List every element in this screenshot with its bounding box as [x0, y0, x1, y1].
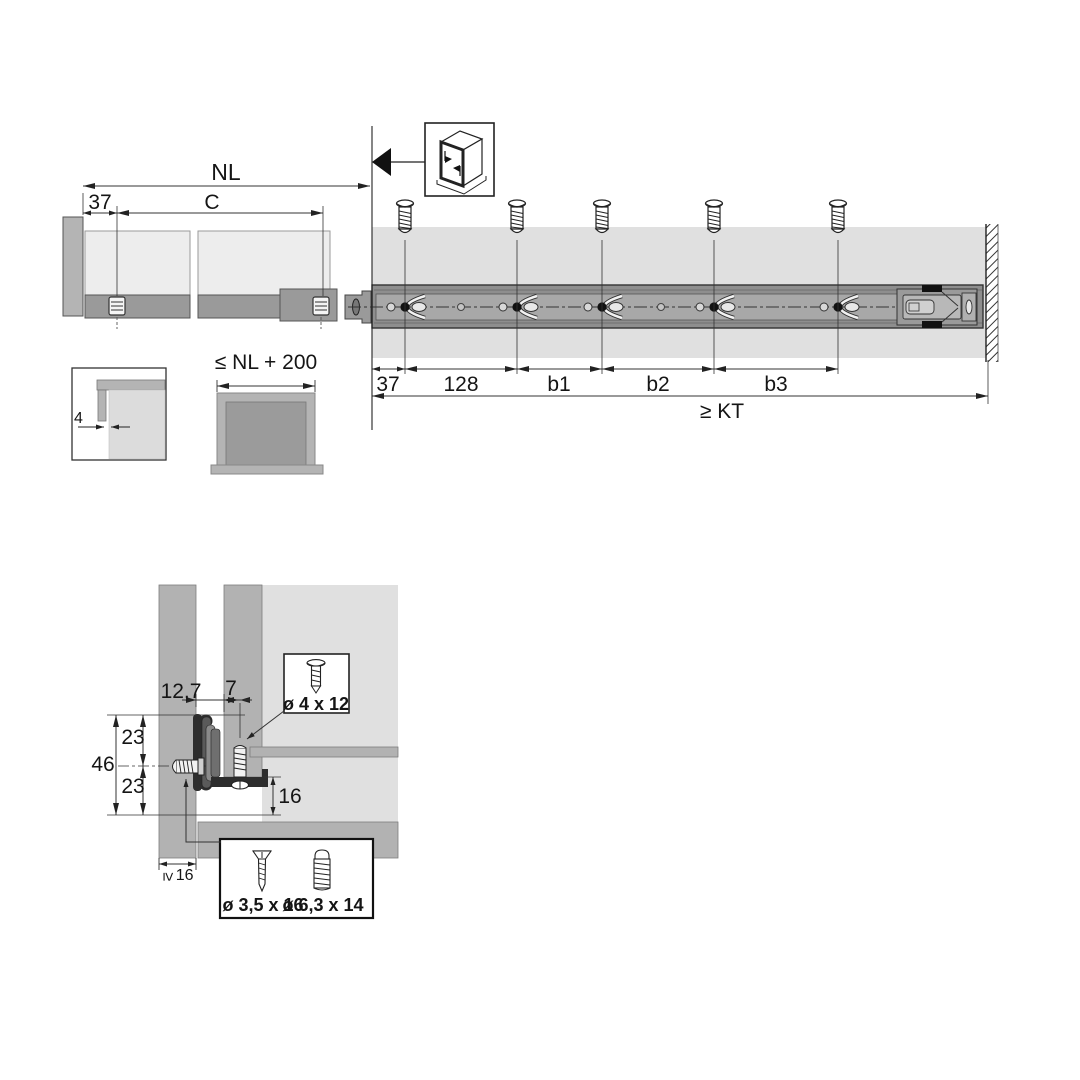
dim-37-front-label: 37: [88, 192, 111, 213]
drawer-length-detail: [211, 380, 323, 474]
dim-gap-4-label: 4: [74, 411, 83, 427]
screw-spec-4x12-label: ø 4 x 12: [283, 695, 349, 713]
front-gap-detail: [72, 368, 166, 460]
cabinet-icon: [425, 123, 494, 196]
dim-spacing-b2-label: b2: [646, 374, 669, 395]
dim-spacing-37-label: 37: [376, 374, 399, 395]
drawer-bottom-screw-installed: [232, 746, 249, 790]
dim-c-label: C: [204, 192, 219, 213]
technical-drawing: [0, 0, 1080, 1080]
dim-nl-label: NL: [211, 161, 240, 184]
drawer-runner-plan: [345, 285, 983, 328]
runner-rear-latch-assembly: [897, 285, 977, 328]
dim-23-upper-label: 23: [121, 727, 144, 748]
dim-min-16-label: ≥ 16: [162, 868, 193, 884]
dim-12-7-label: 12,7: [161, 681, 202, 702]
min-value: 16: [176, 867, 194, 884]
front-direction-arrow: [372, 148, 425, 176]
cabinet-back-wall-hatched: [986, 224, 998, 362]
min-symbol: ≥: [160, 872, 176, 881]
dim-16-label: 16: [278, 786, 301, 807]
dim-23-lower-label: 23: [121, 776, 144, 797]
dim-7-label: 7: [225, 678, 237, 699]
drawer-side-view: [63, 217, 337, 329]
dim-max-length-label: ≤ NL + 200: [215, 352, 317, 373]
dim-spacing-b1-label: b1: [547, 374, 570, 395]
dim-46-label: 46: [91, 754, 114, 775]
dim-kt-label: ≥ KT: [700, 401, 744, 422]
dim-spacing-128-label: 128: [443, 374, 478, 395]
screw-spec-6-3x14-label: ø 6,3 x 14: [282, 896, 363, 914]
installation-diagram: NL 37 C ≤ NL + 200 4 37 128 b1 b2 b3 ≥ K…: [0, 0, 1080, 1080]
dim-spacing-b3-label: b3: [764, 374, 787, 395]
